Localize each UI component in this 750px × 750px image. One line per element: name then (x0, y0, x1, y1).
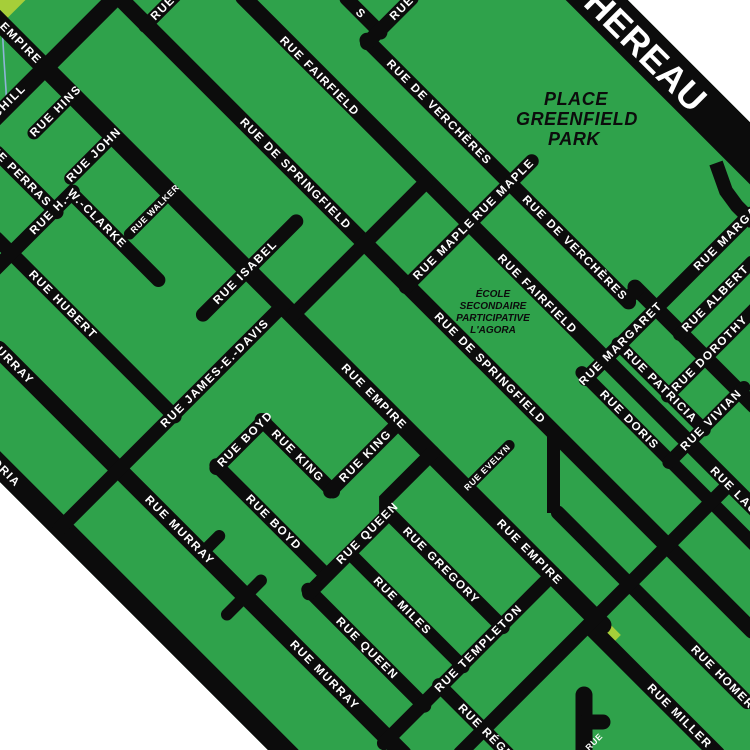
svg-text:ÉCOLE: ÉCOLE (476, 287, 511, 300)
svg-text:SECONDAIRE: SECONDAIRE (460, 301, 527, 312)
svg-text:PARK: PARK (548, 129, 601, 149)
svg-text:GREENFIELD: GREENFIELD (516, 109, 638, 129)
svg-text:L'AGORA: L'AGORA (470, 325, 516, 336)
svg-text:PLACE: PLACE (544, 89, 608, 109)
svg-text:PARTICIPATIVE: PARTICIPATIVE (456, 313, 530, 324)
